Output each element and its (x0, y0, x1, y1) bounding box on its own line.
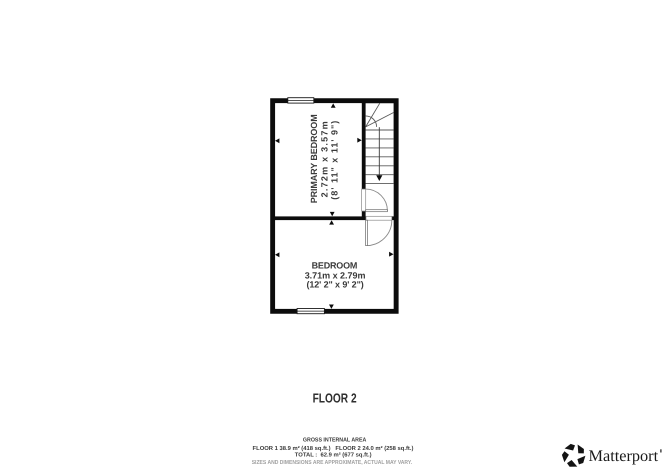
svg-text:Matterport: Matterport (589, 446, 659, 465)
svg-text:FLOOR 2: FLOOR 2 (313, 390, 357, 405)
svg-text:PRIMARY BEDROOM: PRIMARY BEDROOM (309, 114, 319, 203)
svg-text:(12' 2" x 9' 2"): (12' 2" x 9' 2") (306, 280, 363, 290)
svg-text:FLOOR 1 38.9 m² (418 sq.ft.): FLOOR 1 38.9 m² (418 sq.ft.) FLOOR 2 24.… (253, 445, 414, 452)
svg-text:(8' 11" x 11' 9"): (8' 11" x 11' 9") (330, 121, 340, 200)
svg-text:BEDROOM: BEDROOM (312, 260, 358, 270)
svg-text:SIZES AND DIMENSIONS ARE APPRO: SIZES AND DIMENSIONS ARE APPROXIMATE, AC… (252, 459, 413, 466)
svg-text:TOTAL : 62.9 m² (677 sq.ft.): TOTAL : 62.9 m² (677 sq.ft.) (295, 452, 372, 459)
svg-text:GROSS INTERNAL AREA: GROSS INTERNAL AREA (303, 437, 367, 444)
svg-text:2.72m x 3.57m: 2.72m x 3.57m (320, 121, 330, 197)
